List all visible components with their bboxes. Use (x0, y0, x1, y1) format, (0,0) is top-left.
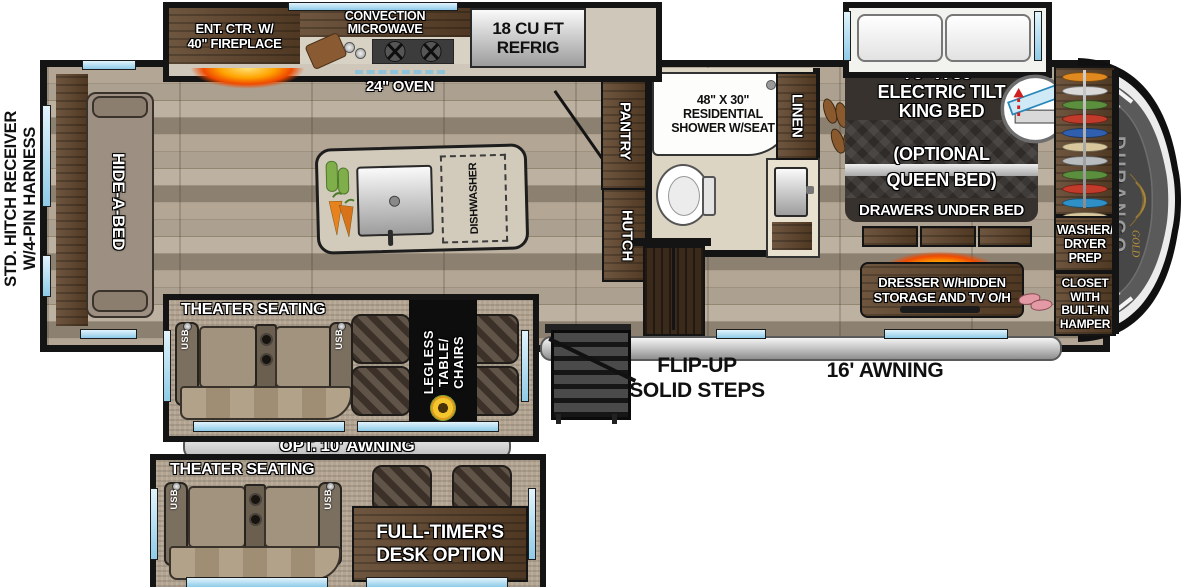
microwave-cabinet: CONVECTION MICROWAVE (300, 8, 470, 37)
living-slideout: THEATER SEATING USB USB LEGLESS TABLE/ C… (163, 294, 539, 442)
seat-cushion (264, 486, 322, 548)
vanity-cabinet (772, 222, 812, 250)
shower-head-icon (766, 80, 776, 90)
hide-a-bed-label: HIDE-A-BED (108, 153, 128, 250)
pillow (945, 14, 1031, 62)
washer-label-line2: DRYER (1064, 237, 1106, 251)
theater-seating: USB USB (175, 322, 353, 418)
microwave-label-line1: CONVECTION (345, 10, 425, 23)
bed-label-line3: KING BED (899, 102, 985, 121)
cooktop-icon (372, 39, 454, 64)
under-bed-drawer (978, 226, 1032, 247)
desk-label-line1: FULL-TIMER'S (376, 521, 504, 544)
legless-table-banner: LEGLESS TABLE/ CHAIRS (409, 300, 477, 424)
faucet-icon (388, 230, 393, 246)
hitch-label-line1: STD. HITCH RECEIVER (2, 111, 21, 287)
steps-label-line1: FLIP-UP (657, 353, 737, 378)
bed-foot: DRAWERS UNDER BED (845, 198, 1038, 222)
theater-seating-label: THEATER SEATING (181, 301, 325, 318)
bed-slideout (843, 2, 1052, 78)
seat-cushion (275, 326, 333, 388)
rear-wall-cabinet (56, 74, 88, 326)
kitchen-island: DISHWASHER (315, 143, 530, 255)
optional-line1-wrap: (OPTIONAL (845, 144, 1038, 164)
window (80, 329, 137, 339)
washer-label-line3: PREP (1069, 251, 1102, 265)
hutch-label: HUTCH (619, 210, 636, 261)
hitch-label: STD. HITCH RECEIVER W/4-PIN HARNESS (0, 60, 42, 338)
entry-door (643, 246, 705, 336)
window (186, 577, 328, 587)
vanity (766, 158, 820, 258)
shower-label-line2: RESIDENTIAL (683, 107, 763, 121)
window (1034, 11, 1042, 61)
step-leg (556, 414, 561, 424)
hitch-label-line2: W/4-PIN HARNESS (21, 127, 40, 270)
window (843, 11, 851, 61)
brand-sub-logo: GOLD (1128, 214, 1142, 274)
option-theater-label-wrap: THEATER SEATING (170, 461, 314, 479)
wardrobe-closet (1054, 66, 1116, 216)
dishwasher-label: DISHWASHER (467, 163, 481, 235)
usb-port-label: USB (180, 329, 190, 350)
under-bed-drawer (862, 226, 918, 247)
oven-label: 24" OVEN (366, 78, 434, 95)
window (42, 105, 51, 207)
window (521, 330, 529, 402)
fireplace-glow (190, 68, 305, 94)
window (82, 60, 136, 70)
bath-wall (645, 68, 652, 258)
vegetables-icon (322, 159, 360, 242)
closet-label-line1: CLOSET (1062, 277, 1109, 291)
window (528, 488, 536, 560)
usb-port-label: USB (334, 329, 344, 350)
shaker-icon (355, 48, 366, 59)
usb-port-label: USB (169, 489, 179, 510)
floorplan: STD. HITCH RECEIVER W/4-PIN HARNESS DURA… (0, 0, 1200, 587)
window (357, 421, 499, 432)
legless-label-line2: TABLE/ (436, 338, 451, 387)
bed-label-line2: ELECTRIC TILT (878, 83, 1006, 102)
optional-label-line1: (OPTIONAL (893, 144, 989, 165)
theater-label-wrap: THEATER SEATING (181, 301, 325, 319)
closet-hamper: CLOSET WITH BUILT-IN HAMPER (1054, 272, 1116, 336)
awning-16-label: 16' AWNING (827, 359, 944, 383)
oven-vent-icon (355, 70, 445, 74)
refrig-label-line2: REFRIG (497, 38, 559, 57)
vanity-faucet (806, 186, 814, 194)
refrigerator: 18 CU FT REFRIG (470, 8, 586, 68)
brand-sub-name: GOLD (1130, 230, 1141, 257)
dresser-label-line2: STORAGE AND TV O/H (874, 290, 1011, 305)
pantry-cabinet: PANTRY (601, 72, 649, 190)
steps-label-wrap: FLIP-UP SOLID STEPS (612, 350, 782, 406)
closet-label-line2: WITH (1070, 291, 1099, 305)
window (150, 488, 158, 560)
usb-port-label: USB (323, 489, 333, 510)
window (193, 421, 345, 432)
island-sink (356, 165, 434, 237)
pantry-label: PANTRY (617, 102, 634, 160)
hide-a-bed-sofa: HIDE-A-BED (86, 92, 154, 318)
tv-icon (900, 306, 980, 313)
desk-label-line2: DESK OPTION (376, 544, 504, 567)
under-bed-drawer (920, 226, 976, 247)
optional-line2-wrap: QUEEN BED) (845, 170, 1038, 190)
ent-ctr-label-line2: 40" FIREPLACE (187, 36, 281, 51)
entry-door-split (672, 248, 675, 330)
full-timers-desk: FULL-TIMER'S DESK OPTION (352, 506, 528, 582)
shower-label-line1: 48" X 30" (697, 93, 749, 107)
step-leg (612, 414, 617, 424)
washer-dryer-prep: WASHER/ DRYER PREP (1054, 216, 1116, 272)
legless-chair (351, 366, 411, 416)
seat-cushion (188, 486, 246, 548)
window (884, 329, 1008, 339)
sofa-label-wrap: HIDE-A-BED (88, 114, 148, 290)
toilet-tank (702, 176, 716, 216)
linen-cabinet: LINEN (776, 72, 818, 160)
window (366, 577, 508, 587)
bedroom-front-wall (1112, 70, 1119, 334)
legless-chair (351, 314, 411, 364)
seat-console (244, 484, 266, 552)
dresser: DRESSER W/HIDDEN STORAGE AND TV O/H (860, 262, 1024, 318)
oven-label-wrap: 24" OVEN (345, 76, 455, 96)
closet-label-line3: BUILT-IN (1061, 304, 1108, 318)
dresser-label-line1: DRESSER W/HIDDEN (878, 275, 1005, 290)
shower: 48" X 30" RESIDENTIAL SHOWER W/SEAT (652, 72, 794, 156)
cutting-board-icon (304, 32, 347, 70)
ent-ctr-label-line1: ENT. CTR. W/ (195, 21, 273, 36)
drawers-label: DRAWERS UNDER BED (859, 202, 1024, 219)
entry-lintel (633, 238, 711, 246)
sofa-armrest (92, 290, 148, 312)
legless-label-line1: LEGLESS (421, 330, 436, 394)
shaker-icon (344, 42, 355, 53)
window (42, 255, 51, 297)
toilet-bowl (668, 176, 700, 216)
entertainment-center: ENT. CTR. W/ 40" FIREPLACE (169, 8, 300, 64)
closet-label-line4: HAMPER (1060, 318, 1110, 332)
window (163, 330, 171, 402)
option-theater-seating: USB USB (164, 482, 342, 578)
sink-drain (389, 196, 400, 207)
linen-label: LINEN (789, 94, 806, 138)
desk-option-box: THEATER SEATING USB USB FULL-TIMER'S DES… (150, 454, 546, 587)
pillow (857, 14, 943, 62)
dishwasher: DISHWASHER (440, 154, 508, 244)
microwave-label-line2: MICROWAVE (348, 23, 423, 36)
vanity-sink (774, 167, 808, 217)
washer-label-line1: WASHER/ (1057, 223, 1113, 237)
closet-rod (1083, 70, 1086, 208)
shower-label-line3: SHOWER W/SEAT (671, 121, 775, 135)
seat-chaise (180, 386, 352, 420)
seat-console (255, 324, 277, 392)
kitchen-counter: CONVECTION MICROWAVE (300, 8, 470, 64)
seat-chaise (169, 546, 341, 580)
refrig-label-line1: 18 CU FT (492, 19, 563, 38)
legless-label-line3: CHAIRS (451, 336, 466, 389)
sunflower-icon (429, 394, 457, 422)
seat-cushion (199, 326, 257, 388)
option-theater-label: THEATER SEATING (170, 461, 314, 478)
window (716, 329, 766, 339)
steps-label-line2: SOLID STEPS (629, 378, 765, 403)
window (288, 2, 458, 11)
optional-label-line2: QUEEN BED) (886, 170, 996, 191)
awning-16-label-wrap: 16' AWNING (800, 358, 970, 384)
